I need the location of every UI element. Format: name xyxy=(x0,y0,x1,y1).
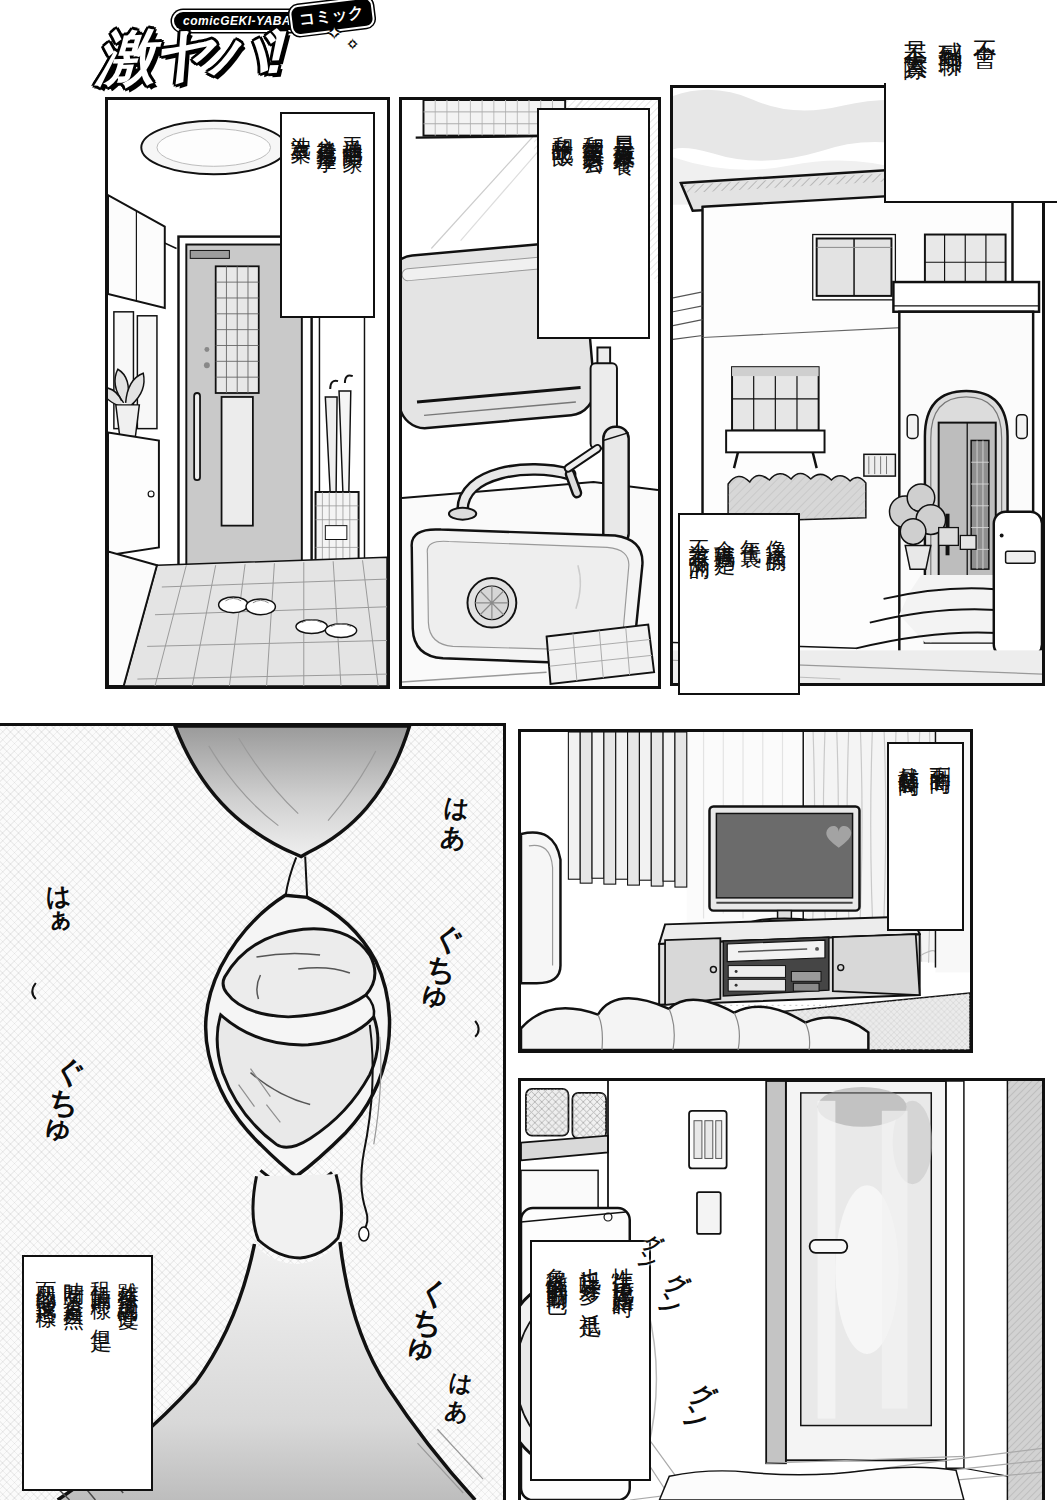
caption-rental-love: 雖然像常說的性愛 租賃的那樣…但是 時間久了還是自然 而然的變成這樣… xyxy=(22,1255,153,1491)
sfx-breath: はぁ xyxy=(40,867,77,927)
logo-title: 激ヤバ! xyxy=(95,23,284,90)
caption-housewife-era: 像這樣的 年代裏 全職媽媽是 不該有不滿的 xyxy=(678,513,800,695)
caption-sendoff-chores: 再送他們離開家 之後就是打掃屋子 洗衣買菜 xyxy=(280,112,375,318)
sfx-breath: はあ xyxy=(437,778,476,838)
caption-killing-time: 剩下的時間 就是打發時間… xyxy=(887,742,964,931)
sparkle-icon: ✦ xyxy=(348,38,357,51)
narration-intro: 不會… 感到無聊 是不太實際 xyxy=(880,22,1002,187)
caption-morning-routine: 早晨起來做好早餐 和便當後去叫老公 和兒子吃飯 xyxy=(537,108,650,339)
magazine-logo: comicGEKI-YABA コミック 激ヤバ! ✦ ✦ xyxy=(96,4,386,102)
caption-sex-life: 性生活也比新婚時 也乏味好多、祇是 象徵性的動動而已 xyxy=(530,1240,651,1481)
manga-page: { "colors": { "ink": "#111111", "paper":… xyxy=(0,0,1057,1500)
sparkle-icon: ✦ xyxy=(328,24,341,42)
